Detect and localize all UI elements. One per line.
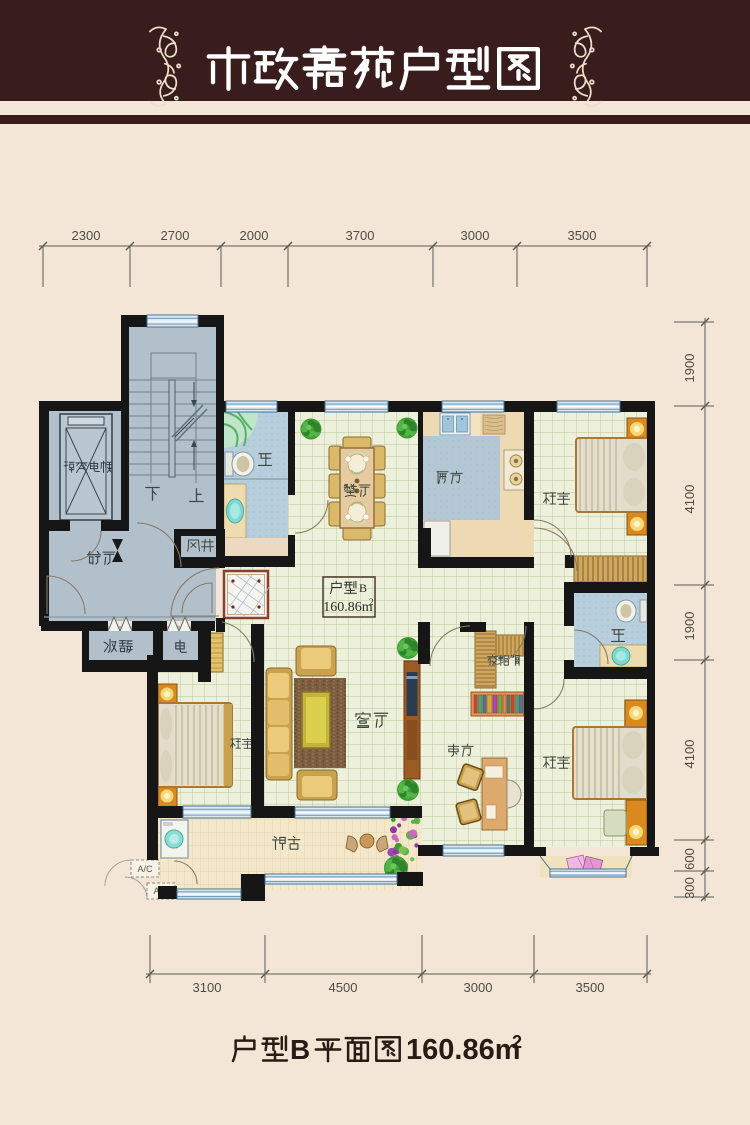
svg-text:4500: 4500 (329, 980, 358, 995)
svg-text:4100: 4100 (682, 485, 697, 514)
svg-text:2: 2 (369, 597, 374, 607)
svg-text:1900: 1900 (682, 612, 697, 641)
svg-text:3000: 3000 (461, 228, 490, 243)
svg-text:3100: 3100 (193, 980, 222, 995)
svg-text:3500: 3500 (576, 980, 605, 995)
svg-text:160.86m: 160.86m (406, 1034, 521, 1066)
svg-text:2700: 2700 (161, 228, 190, 243)
svg-text:A/C: A/C (137, 864, 153, 874)
svg-text:B: B (290, 1034, 310, 1065)
svg-text:3500: 3500 (568, 228, 597, 243)
svg-text:1900: 1900 (682, 354, 697, 383)
svg-text:3700: 3700 (346, 228, 375, 243)
svg-text:300: 300 (682, 877, 697, 899)
svg-text:2300: 2300 (72, 228, 101, 243)
svg-text:160.86m: 160.86m (323, 600, 373, 615)
svg-text:600: 600 (682, 848, 697, 870)
svg-text:4100: 4100 (682, 740, 697, 769)
svg-text:B: B (359, 581, 367, 595)
svg-text:2000: 2000 (240, 228, 269, 243)
svg-text:2: 2 (512, 1032, 522, 1052)
svg-text:3000: 3000 (464, 980, 493, 995)
